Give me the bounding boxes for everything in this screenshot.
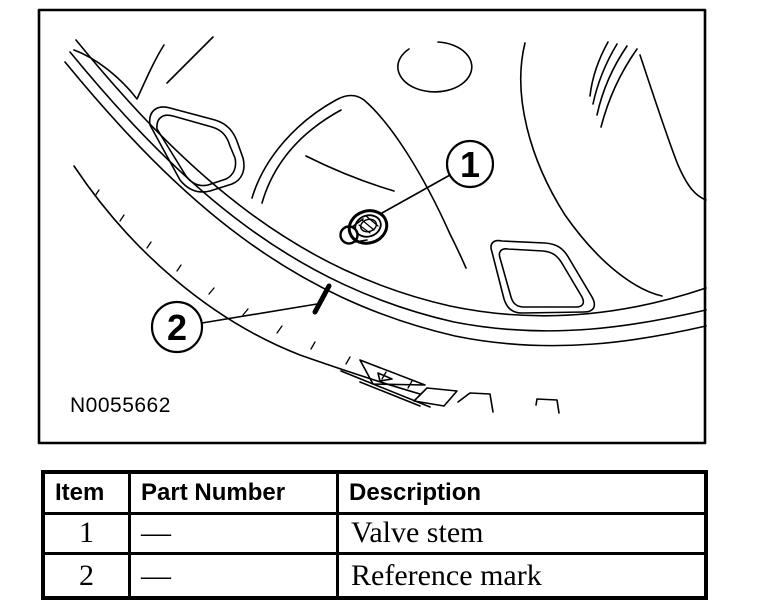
figure-caption: N0055662 — [70, 394, 171, 417]
figure-border — [39, 10, 705, 443]
spoke-window-left — [150, 107, 244, 192]
row2-part-number: — — [131, 555, 339, 596]
header-item: Item — [45, 474, 131, 515]
row1-item: 1 — [45, 515, 131, 556]
spoke-window-center-depth-line — [306, 156, 394, 191]
right-spoke-edge-long — [521, 43, 662, 296]
right-spoke-outer-edge — [640, 55, 706, 200]
right-spoke-edges — [521, 42, 706, 296]
spoke-window-left-outer — [150, 107, 244, 192]
tire-lettering — [341, 360, 559, 413]
rim-flange-inner-arc — [65, 62, 706, 346]
callout-2: 2 — [152, 302, 317, 352]
parts-table: Item Part Number Description 1 — Valve s… — [41, 470, 708, 600]
callout-2-number: 2 — [167, 307, 187, 348]
header-part-number: Part Number — [131, 474, 339, 515]
right-spoke-highlight-4 — [601, 49, 637, 127]
service-manual-page: 1 2 N0055662 Item Part Number Descriptio… — [0, 0, 768, 614]
callout-1-number: 1 — [460, 144, 480, 185]
row1-description: Valve stem — [339, 515, 704, 556]
left-spoke-edge-line — [167, 37, 213, 83]
rim-flange-outer-arc — [70, 52, 706, 331]
header-description: Description — [339, 474, 704, 515]
hub-bore-arc — [398, 42, 472, 92]
tire-letter-shape-1 — [360, 360, 425, 385]
tire-letter-shape-4 — [536, 399, 559, 413]
tire-letter-shape-3 — [458, 393, 493, 412]
row1-part-number: — — [131, 515, 339, 556]
row2-item: 2 — [45, 555, 131, 596]
row2-description: Reference mark — [339, 555, 704, 596]
rim-flange-arcs — [65, 40, 706, 346]
callout-1-leader-line — [382, 175, 450, 213]
tire-serration-ticks — [95, 190, 412, 388]
spoke-window-lower-right-inner — [499, 249, 583, 307]
left-spoke-edges — [74, 37, 213, 99]
spoke-window-lower-right — [491, 241, 594, 313]
callout-1: 1 — [382, 141, 493, 213]
reference-mark — [315, 286, 329, 312]
right-spoke-highlight-2 — [593, 44, 617, 104]
